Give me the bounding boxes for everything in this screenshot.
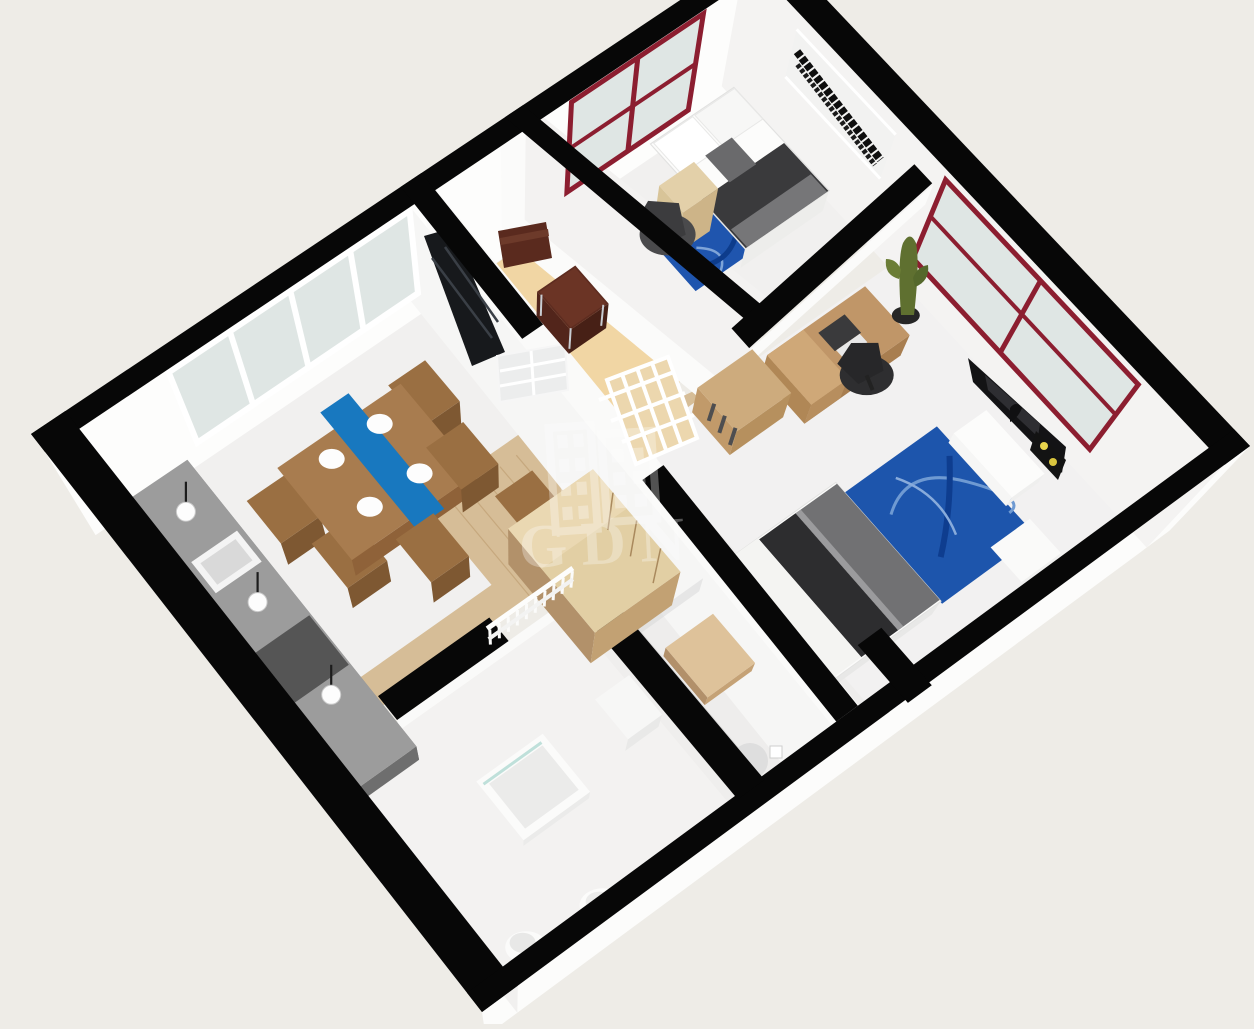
- svg-text:GDN: GDN: [517, 505, 700, 582]
